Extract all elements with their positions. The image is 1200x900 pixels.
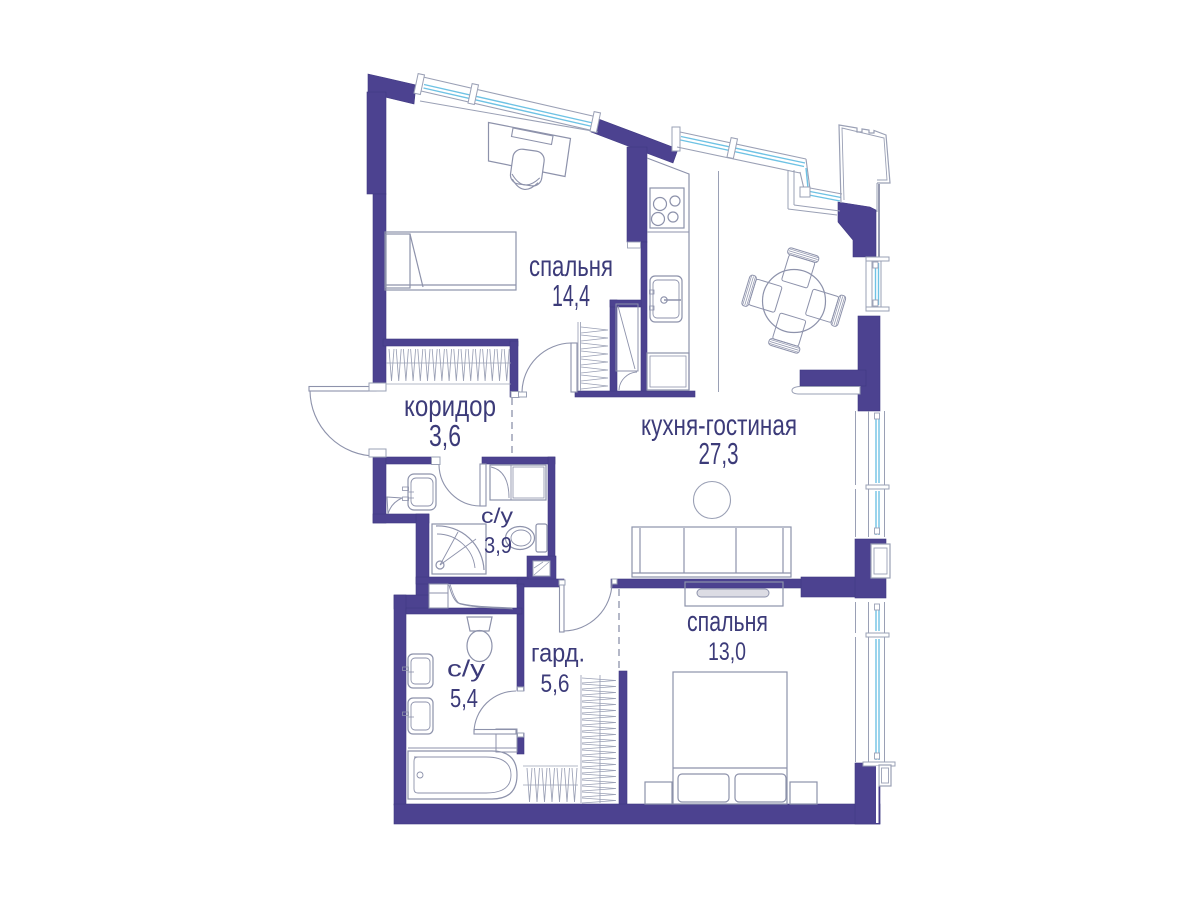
svg-text:14,4: 14,4	[552, 278, 590, 313]
svg-text:с/у: с/у	[447, 656, 486, 682]
svg-text:5,4: 5,4	[450, 685, 478, 713]
svg-text:3,6: 3,6	[429, 418, 461, 453]
svg-text:5,6: 5,6	[541, 670, 570, 698]
svg-text:27,3: 27,3	[699, 436, 739, 471]
svg-text:3,9: 3,9	[484, 532, 512, 558]
svg-text:с/у: с/у	[481, 505, 514, 528]
svg-text:гард.: гард.	[531, 638, 585, 668]
svg-text:13,0: 13,0	[708, 638, 746, 666]
svg-text:спальня: спальня	[687, 606, 768, 638]
